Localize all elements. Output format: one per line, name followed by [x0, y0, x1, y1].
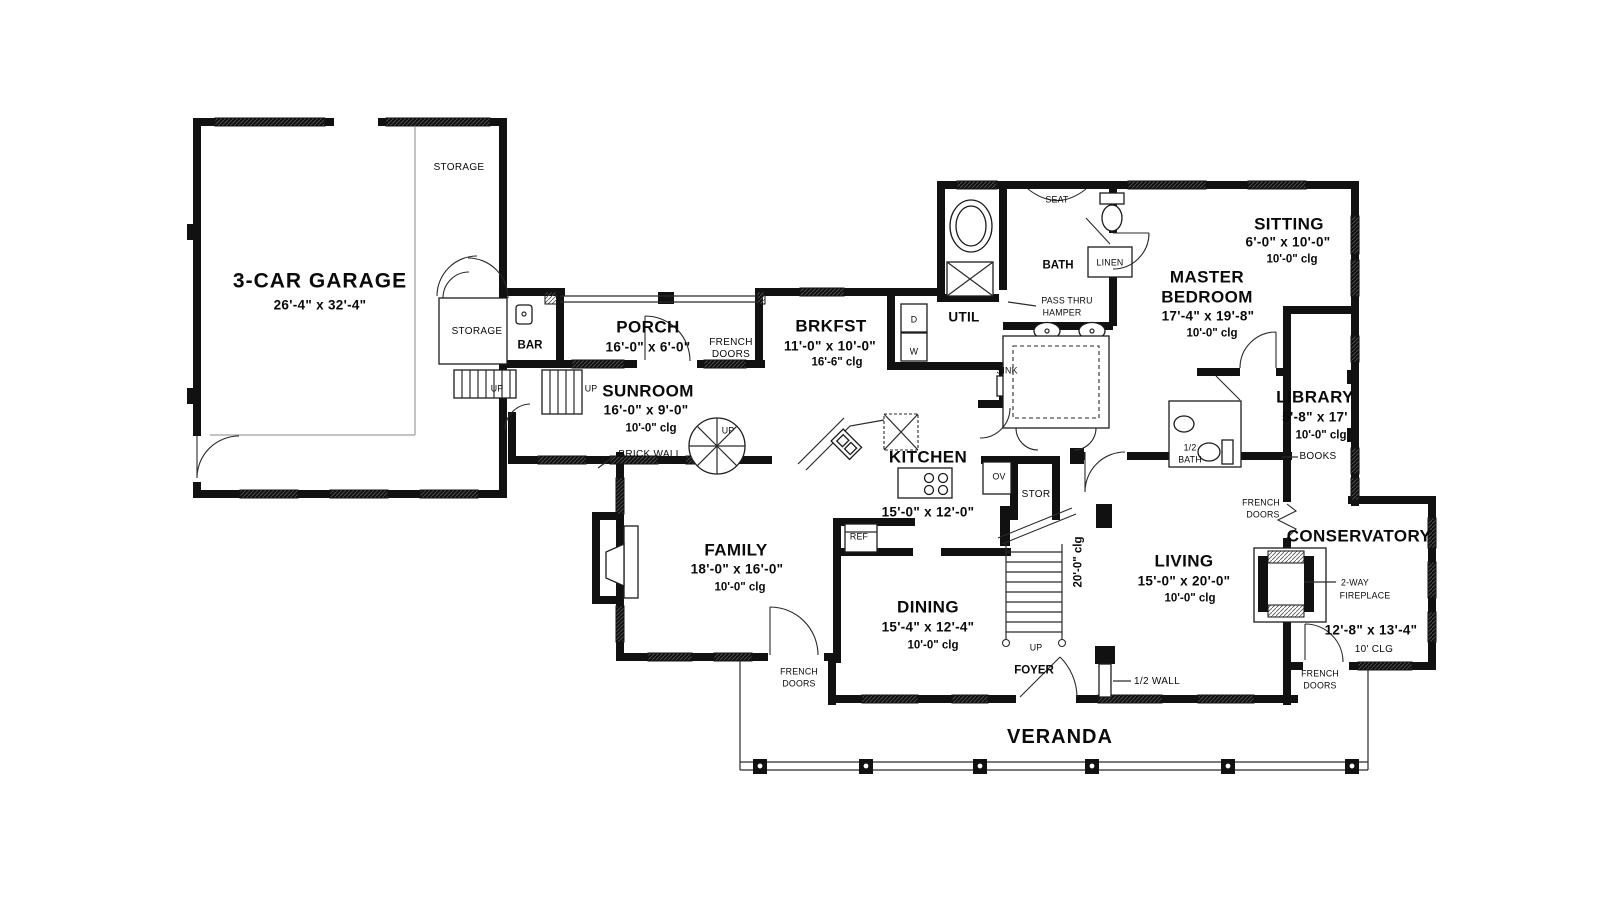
util-label: UTIL: [948, 310, 979, 324]
storage-lower-label: STORAGE: [452, 327, 503, 337]
living-label: LIVING: [1154, 553, 1213, 570]
master-label-2: BEDROOM: [1161, 289, 1253, 306]
linen-label: LINEN: [1097, 259, 1124, 268]
up-sunroom-label: UP: [585, 385, 598, 394]
shower: [947, 262, 993, 296]
walls: [187, 118, 1436, 705]
half-wall-label: 1/2 WALL: [1134, 677, 1180, 687]
dryer-label: D: [911, 316, 918, 325]
up-spiral-label: UP: [722, 427, 735, 436]
floor-plan: 3-CAR GARAGE 26'-4" x 32'-4" STORAGE STO…: [0, 0, 1600, 900]
french-doors-library-1: FRENCH: [1242, 499, 1280, 508]
living-dims: 15'-0" x 20'-0": [1138, 574, 1231, 588]
family-dims: 18'-0" x 16'-0": [691, 562, 784, 576]
kitchen-counter: [798, 418, 884, 470]
ref-label: REF: [850, 533, 868, 542]
up-stairs-label: UP: [1030, 644, 1043, 653]
kitchen-dims: 15'-0" x 12'-0": [882, 505, 975, 519]
library-dims: 5'-8" x 17': [1282, 410, 1348, 424]
kitchen-label: KITCHEN: [889, 449, 967, 466]
windows: [215, 118, 1436, 703]
dining-dims: 15'-4" x 12'-4": [882, 620, 975, 634]
hamper-label: HAMPER: [1043, 309, 1082, 318]
sitting-dims: 6'-0" x 10'-0": [1246, 235, 1331, 249]
floor-plan-drawing: [0, 0, 1600, 900]
foyer-half-wall: [1099, 664, 1111, 697]
brick-wall-label: BRICK WALL: [618, 450, 681, 460]
bath-label: BATH: [1042, 260, 1073, 272]
seat-label: SEAT: [1045, 196, 1068, 205]
oven-label: OV: [992, 473, 1005, 482]
sitting-clg: 10'-0" clg: [1266, 254, 1317, 266]
stor-label: STOR: [1022, 490, 1051, 500]
fireplace-label-1: 2-WAY: [1341, 579, 1369, 588]
conservatory-dims: 12'-8" x 13'-4": [1325, 623, 1418, 637]
sink-label: SINK: [996, 367, 1017, 376]
half-bath-label-2: BATH: [1178, 456, 1202, 465]
sunroom-clg: 10'-0" clg: [625, 423, 676, 435]
garage-staircase: [454, 370, 516, 398]
library-clg: 10'-0" clg: [1295, 430, 1346, 442]
washer-label: W: [910, 348, 919, 357]
brkfst-dims: 11'-0" x 10'-0": [784, 339, 876, 353]
spiral-staircase: [689, 418, 745, 474]
walk-in-closet: [1003, 336, 1109, 428]
master-dims: 17'-4" x 19'-8": [1162, 309, 1255, 323]
sunroom-label: SUNROOM: [602, 383, 694, 400]
storage-top-label: STORAGE: [434, 163, 485, 173]
bar-label: BAR: [518, 340, 543, 352]
sunroom-staircase: [542, 370, 582, 414]
sitting-label: SITTING: [1254, 216, 1324, 233]
stair-clg-label: 20'-0" clg: [1073, 536, 1085, 587]
fireplace-label-2: FIREPLACE: [1340, 592, 1391, 601]
french-doors-conservatory-1: FRENCH: [1301, 670, 1339, 679]
foyer-label: FOYER: [1014, 665, 1054, 677]
master-clg: 10'-0" clg: [1186, 328, 1237, 340]
veranda-label: VERANDA: [1007, 727, 1113, 747]
conservatory-label: CONSERVATORY: [1287, 528, 1432, 545]
bar-counter: [516, 305, 532, 324]
conservatory-clg: 10' CLG: [1355, 645, 1393, 655]
toilet: [1100, 193, 1124, 231]
pass-thru-label: PASS THRU: [1041, 297, 1092, 306]
veranda-posts: [753, 759, 1359, 774]
french-doors-porch-1: FRENCH: [709, 338, 752, 348]
french-doors-conservatory-2: DOORS: [1303, 682, 1336, 691]
kitchen-skylight: [884, 414, 918, 450]
french-doors-library-2: DOORS: [1246, 511, 1279, 520]
brkfst-label: BRKFST: [795, 318, 866, 335]
family-clg: 10'-0" clg: [714, 582, 765, 594]
french-doors-porch-2: DOORS: [712, 350, 750, 360]
kitchen-island-cooktop: [898, 468, 952, 498]
dining-clg: 10'-0" clg: [907, 640, 958, 652]
garage-dims: 26'-4" x 32'-4": [274, 298, 367, 312]
dining-label: DINING: [897, 599, 959, 616]
garage-label: 3-CAR GARAGE: [233, 271, 407, 292]
library-label: LIBRARY: [1276, 389, 1354, 406]
porch-dims: 16'-0" x 6'-0": [606, 340, 691, 354]
french-doors-family-2: DOORS: [782, 680, 815, 689]
living-clg: 10'-0" clg: [1164, 593, 1215, 605]
brkfst-clg: 16'-6" clg: [811, 357, 862, 369]
french-doors-family-1: FRENCH: [780, 668, 818, 677]
bathtub: [950, 200, 992, 252]
books-label: BOOKS: [1299, 452, 1336, 462]
up-garage-label: UP: [491, 385, 504, 394]
sunroom-dims: 16'-0" x 9'-0": [604, 403, 689, 417]
porch-label: PORCH: [616, 319, 679, 336]
master-label-1: MASTER: [1170, 269, 1244, 286]
half-bath-label-1: 1/2: [1184, 444, 1197, 453]
family-label: FAMILY: [704, 542, 767, 559]
two-way-fireplace: [1254, 548, 1326, 622]
